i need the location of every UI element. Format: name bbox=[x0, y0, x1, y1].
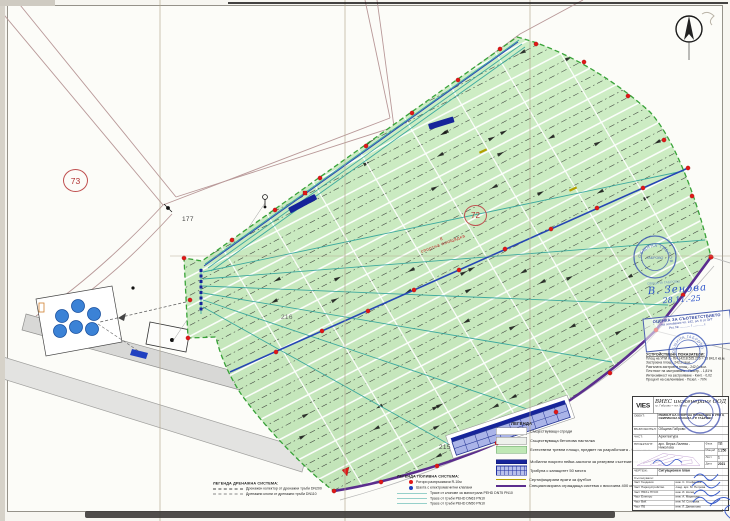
indicator-line: Процент на озеленяване - Позел. - 70% bbox=[646, 378, 730, 382]
vies-logo: VIES bbox=[633, 397, 654, 413]
valve-dot-swatch bbox=[409, 486, 413, 490]
legend-title: ЛЕГЕНДА ПОЛИВНА СИСТЕМА: bbox=[397, 474, 557, 479]
sprinkler-dot-swatch bbox=[409, 480, 413, 484]
object-row: ОБЕКТ: РЕМОНТ НА СПОРТНА ПЛОЩАДКА В УПИ … bbox=[633, 414, 728, 428]
north-arrow-icon bbox=[676, 12, 714, 60]
pipe-line-swatch bbox=[397, 498, 427, 499]
title-block-header: VIES ВИЕС инженеринг ООД гр. Габрово • т… bbox=[633, 397, 728, 414]
legend-irrigation: ЛЕГЕНДА ПОЛИВНА СИСТЕМА: Ротори разпръск… bbox=[397, 474, 557, 521]
company-address: гр. Габрово • тел./факс bbox=[655, 405, 727, 408]
parcel-number-216: 216 bbox=[281, 314, 293, 321]
bench-swatch bbox=[496, 459, 527, 464]
parcel-number-177: 177 bbox=[182, 216, 194, 223]
legend-item: Шахта с електромагнитни клапани bbox=[397, 486, 557, 490]
grass-swatch bbox=[496, 446, 527, 454]
legend-title: ЛЕГЕНДА ДРЕНАЖНА СИСТЕМА: bbox=[213, 481, 383, 486]
branch-line-swatch bbox=[213, 494, 243, 495]
legend-item: Трасе от клонове за магистрала PEHD DN75… bbox=[397, 492, 557, 496]
pipe-line-swatch bbox=[397, 504, 427, 505]
legend-item: Ротори разпръсквачи R-10м bbox=[397, 480, 557, 484]
parcel-number-215: 215 bbox=[439, 444, 451, 451]
pipe-line-swatch bbox=[397, 493, 427, 494]
client-row: ВЪЗЛОЖИТЕЛ: Община Габрово bbox=[633, 427, 728, 435]
site-plan-sheet: ОБЩИНА ГАБРОВО ГАБРОВО ОБЩИНА ГАБРОВО 73… bbox=[0, 0, 730, 521]
concrete-swatch bbox=[496, 437, 527, 445]
legend-item: Дренажен колектор от дренажни тръби DN20… bbox=[213, 487, 383, 491]
drawing-meta: ФазаТП Мащаб1:250 Лист1 Дата2021 bbox=[705, 442, 728, 468]
legend-item: Дренажни клони от дренажни тръби DN110 bbox=[213, 492, 383, 496]
handwritten-approval: ОБЩИНА ГАБРОВО В. Зенова 28.11.-25 bbox=[647, 278, 714, 307]
discipline-row: ЧАСТ: Архитектура bbox=[633, 435, 728, 443]
designer-row: ПРОЕКТАНТ: арх. Верка Лалева - Николова bbox=[633, 442, 705, 451]
legend-item: Трасе от тръби PEHD DN63 PN10 bbox=[397, 497, 557, 501]
title-block: VIES ВИЕС инженеринг ООД гр. Габрово • т… bbox=[632, 396, 727, 509]
development-indicators: УСТРОЙСТВЕНИ ПОКАЗАТЕЛИ: Площ на УПИ II … bbox=[646, 352, 730, 396]
existing-building bbox=[146, 322, 190, 352]
signature-row: Част ПБинж. Л. Данаилова bbox=[633, 506, 728, 510]
collector-line-swatch bbox=[213, 488, 243, 489]
indicators-title: УСТРОЙСТВЕНИ ПОКАЗАТЕЛИ: bbox=[646, 352, 730, 357]
drawing-title-row: ЧЕРТЕЖ: Ситуационен план bbox=[633, 469, 728, 477]
signatures-table: Част Геодезияинж. С. Стефанова Част Парк… bbox=[633, 481, 728, 510]
legend-drainage: ЛЕГЕНДА ДРЕНАЖНА СИСТЕМА: Дренажен колек… bbox=[213, 481, 383, 517]
legend-item: Трасе от тръби PEHD DN50 PN10 bbox=[397, 502, 557, 506]
building-swatch bbox=[496, 428, 527, 436]
miniature-drawing bbox=[633, 451, 705, 469]
parcel-number-73: 73 bbox=[63, 169, 88, 192]
